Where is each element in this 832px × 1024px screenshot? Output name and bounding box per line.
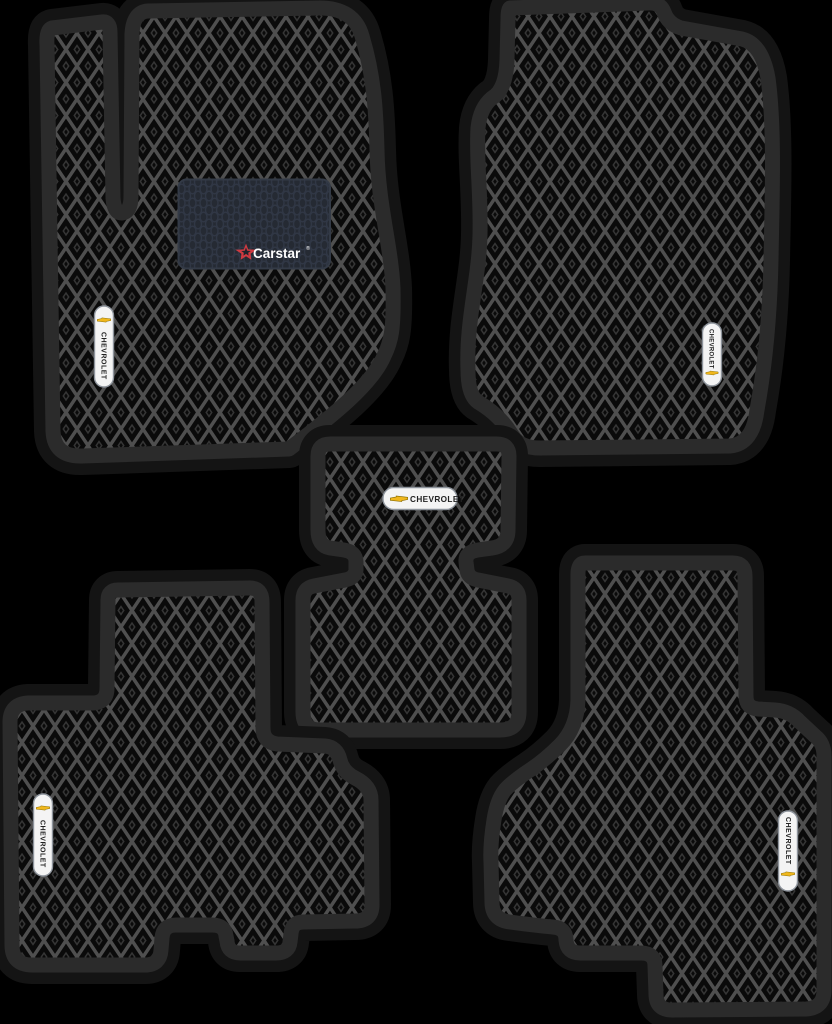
carstar-registered-mark: ® [306,245,310,252]
product-photo-canvas: Carstar ® CHEVROLET CHEVROLET CHEVROLET [0,0,832,1024]
car-mats-product-image: Carstar ® CHEVROLET CHEVROLET CHEVROLET [0,0,832,1024]
chevrolet-badge-front-left: CHEVROLET [95,306,114,387]
chevrolet-badge-label: CHEVROLET [410,495,464,504]
heel-pad: Carstar ® [179,180,331,269]
carstar-brand-text: Carstar [253,246,301,261]
rear-right-mat: CHEVROLET [491,563,824,1010]
chevrolet-badge-rear-right: CHEVROLET [779,811,798,891]
front-right-passenger-mat: CHEVROLET [468,3,773,448]
chevrolet-badge-label: CHEVROLET [38,820,45,868]
middle-tunnel-mat: CHEVROLET [303,444,519,730]
chevrolet-badge-rear-left: CHEVROLET [34,794,53,876]
chevrolet-badge-front-right: CHEVROLET [703,323,722,386]
chevrolet-badge-middle: CHEVROLET [383,488,464,510]
chevrolet-badge-label: CHEVROLET [707,329,713,369]
front-right-mat-shape [468,3,773,448]
front-left-driver-mat: Carstar ® CHEVROLET [47,8,393,456]
chevrolet-badge-label: CHEVROLET [99,332,106,380]
chevrolet-badge-label: CHEVROLET [784,817,791,865]
